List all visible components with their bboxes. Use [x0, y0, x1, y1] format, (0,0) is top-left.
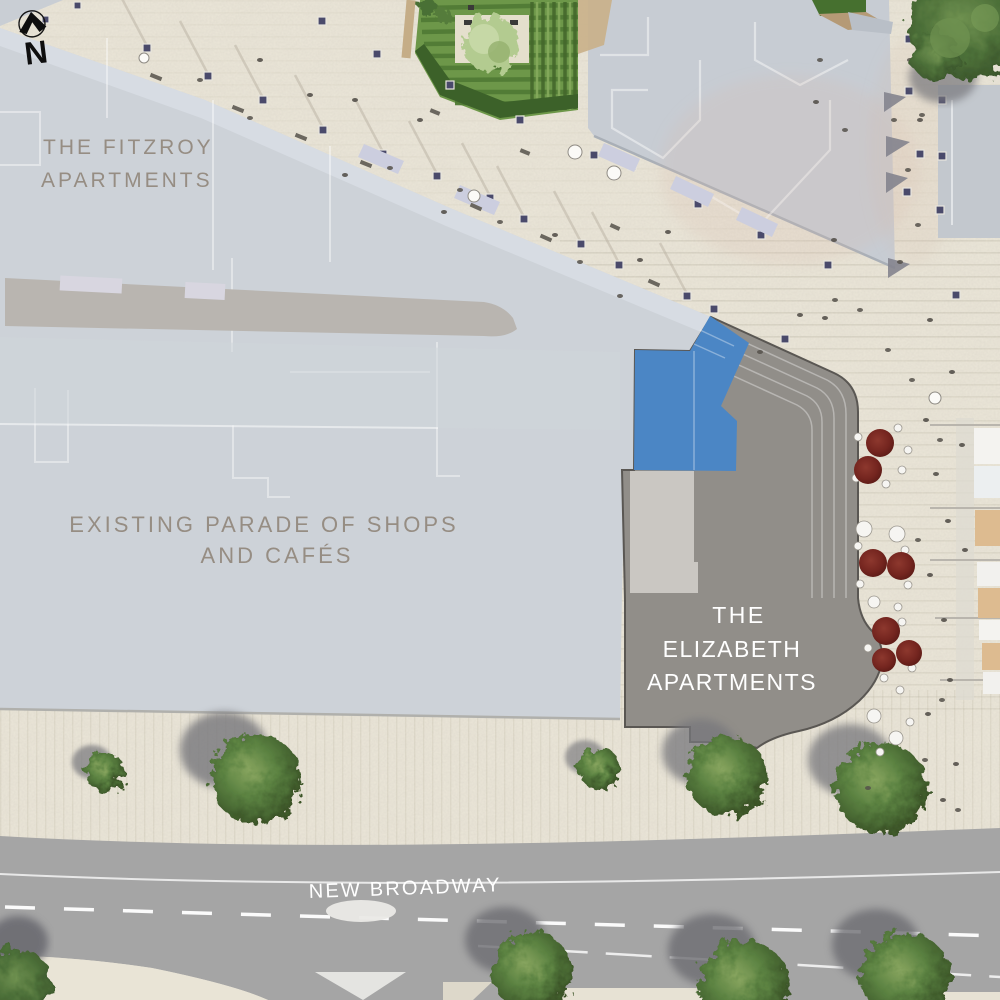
svg-text:THE: THE — [712, 602, 766, 628]
svg-text:AND CAFÉS: AND CAFÉS — [201, 543, 354, 568]
svg-text:EXISTING PARADE OF SHOPS: EXISTING PARADE OF SHOPS — [69, 512, 458, 537]
svg-text:N: N — [22, 33, 49, 72]
svg-text:APARTMENTS: APARTMENTS — [41, 169, 213, 192]
svg-text:THE FITZROY: THE FITZROY — [43, 136, 214, 159]
svg-text:ELIZABETH: ELIZABETH — [663, 636, 802, 662]
svg-text:APARTMENTS: APARTMENTS — [647, 669, 817, 695]
